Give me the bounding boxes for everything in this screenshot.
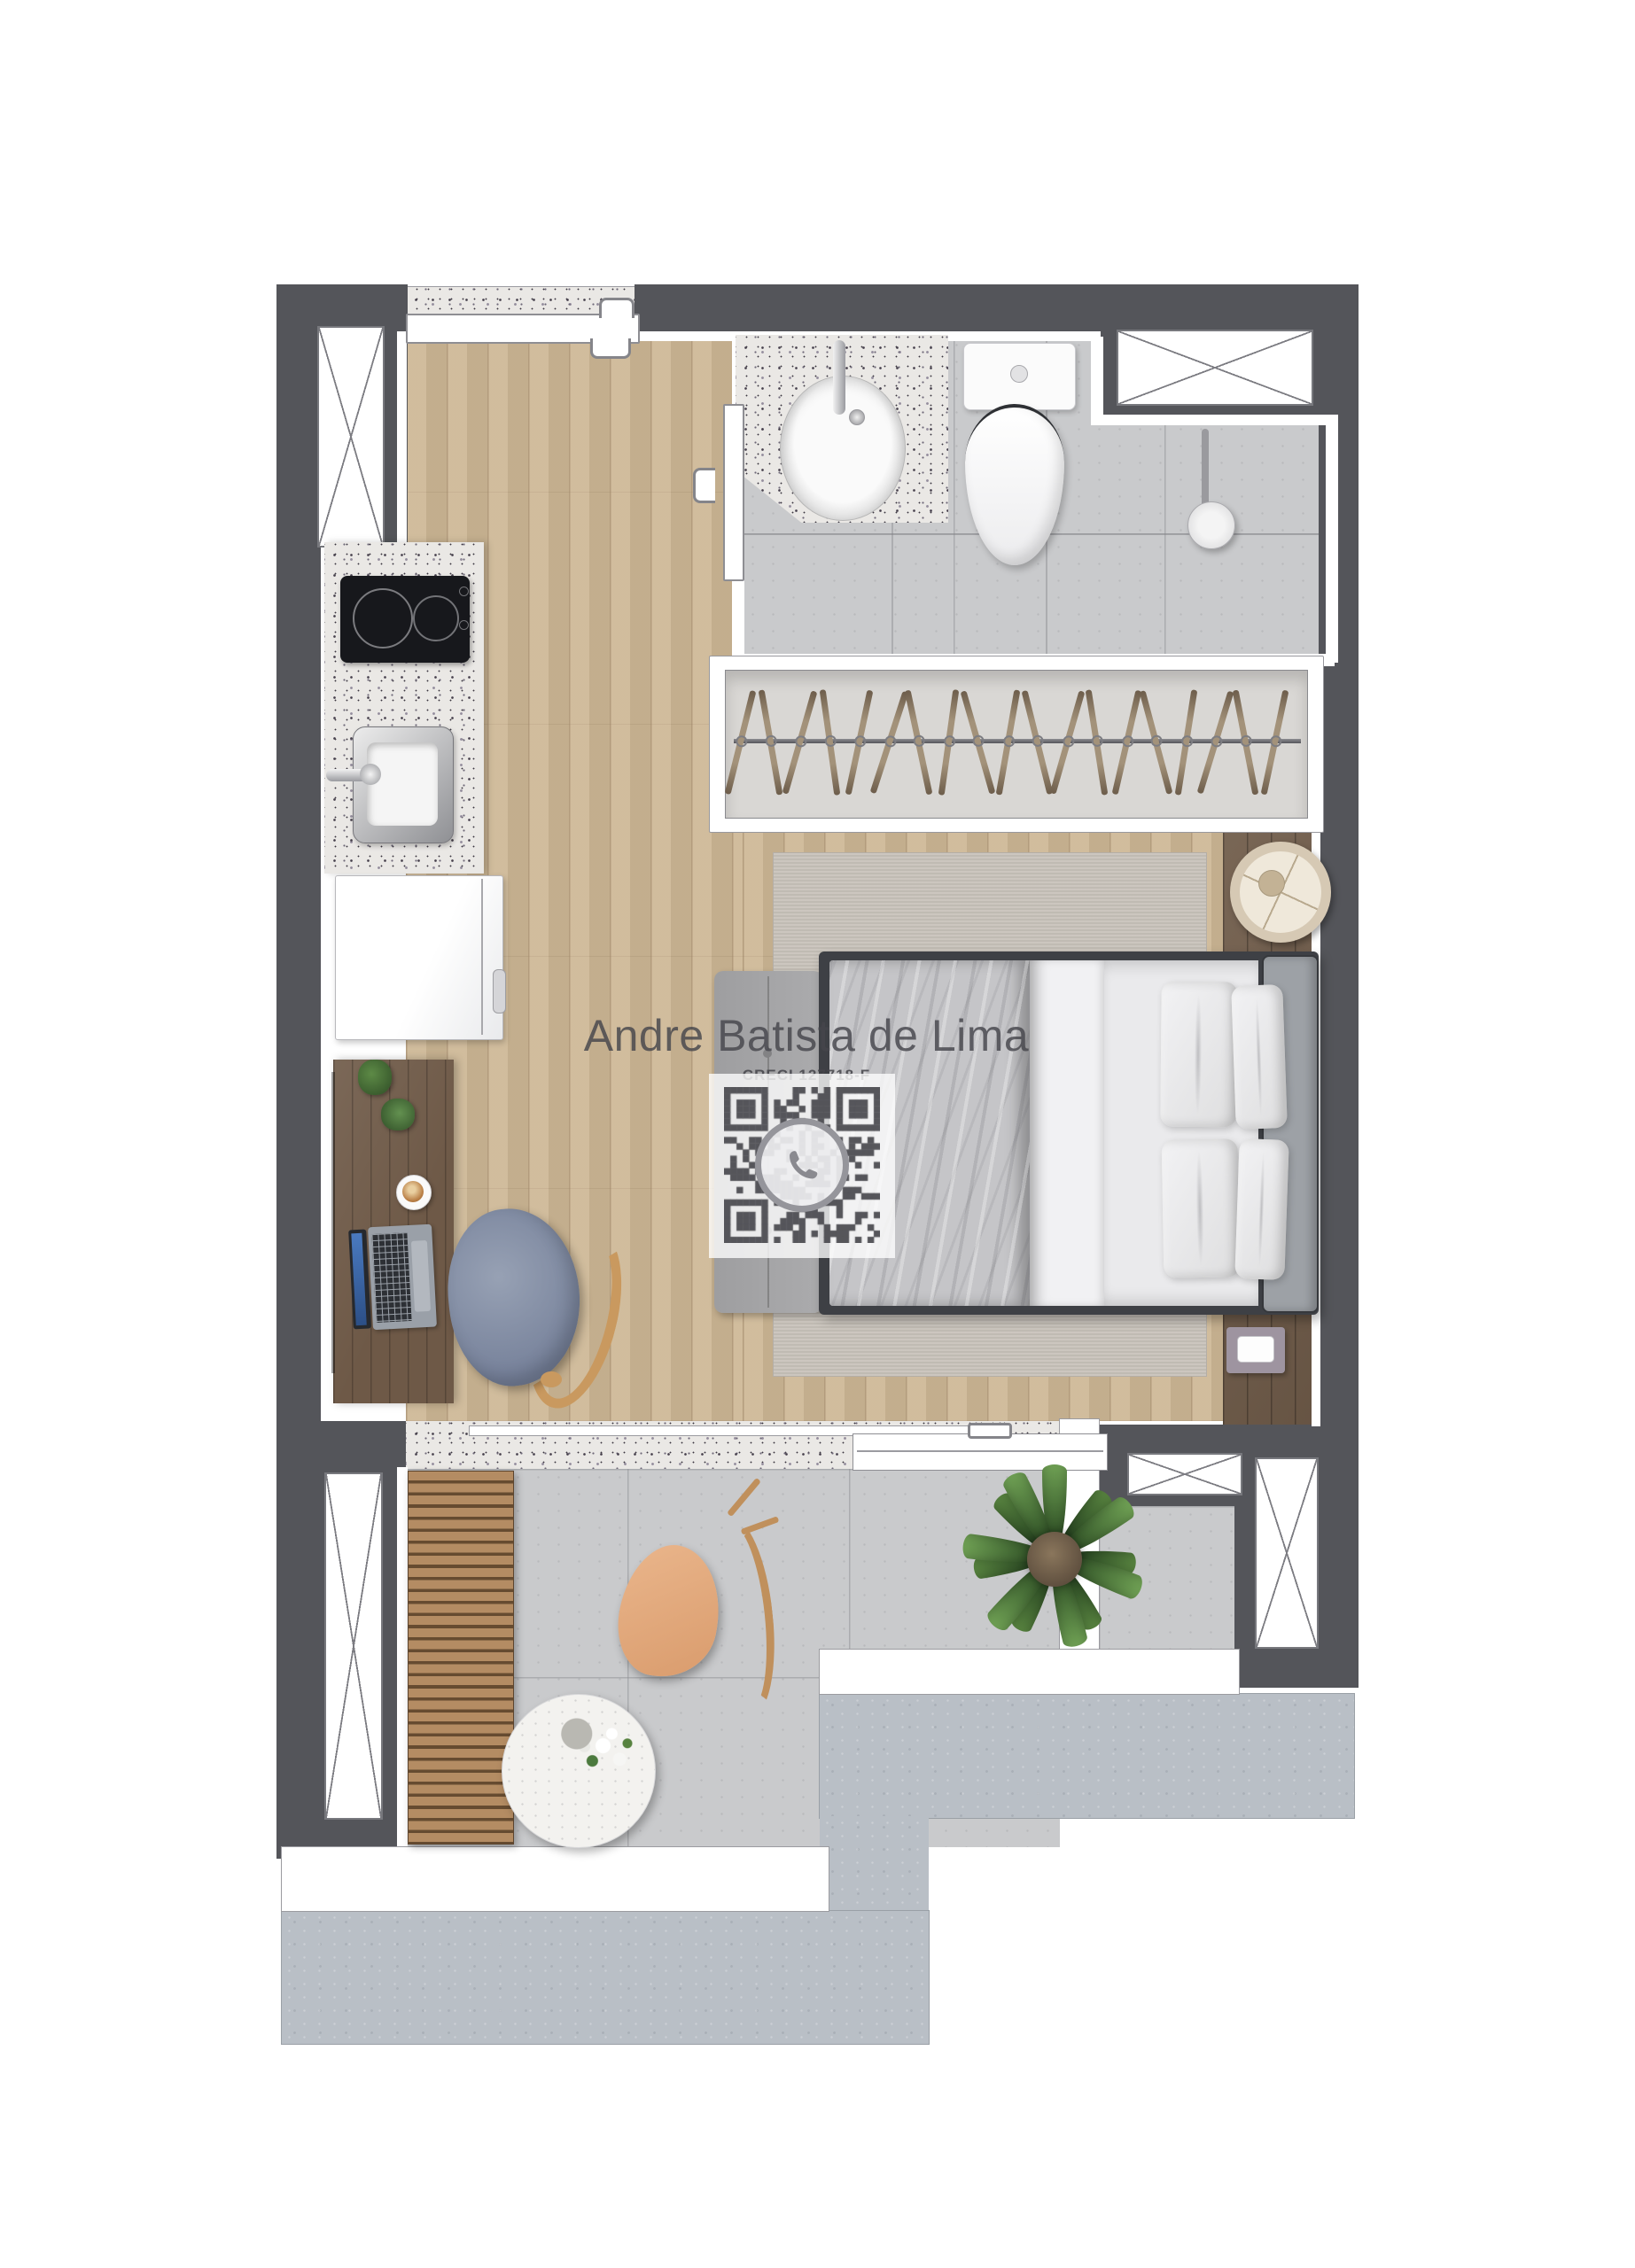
pillow-bottom-outer	[1234, 1138, 1289, 1280]
bedside-lamp-center	[1258, 870, 1285, 897]
fridge	[335, 875, 503, 1040]
bathroom-door-handle-outer	[693, 468, 715, 503]
toilet-flush-button	[1010, 365, 1028, 383]
pillow-bottom-inner	[1162, 1138, 1241, 1278]
nightstand-device	[1237, 1336, 1274, 1363]
kitchen-faucet-base	[360, 764, 381, 785]
desk-plant-1	[358, 1060, 392, 1095]
sliding-door-panels	[853, 1433, 1108, 1471]
qr-panel	[709, 1074, 895, 1258]
shaft-top-right	[1117, 330, 1313, 406]
watermark-name: Andre Batista de Lima	[541, 1010, 1072, 1061]
bathroom-door-leaf	[723, 404, 744, 581]
sliding-door-handle	[968, 1423, 1012, 1439]
pillow-top-inner	[1160, 982, 1237, 1128]
terrace-plant-pot	[1027, 1532, 1082, 1587]
shaft-bottom-vertical	[1255, 1457, 1319, 1649]
sink-drain	[849, 409, 865, 425]
cooktop-control-2	[459, 620, 469, 630]
window-shaft-top-left	[317, 326, 385, 548]
entry-door-handle-inner	[590, 338, 631, 359]
fridge-door-line	[481, 879, 483, 1035]
wall-right	[1319, 420, 1359, 1426]
terrace-plant	[970, 1475, 1139, 1643]
balcony-table-flowers	[549, 1710, 647, 1790]
shower-head	[1187, 501, 1235, 549]
exterior-slab-right	[820, 1694, 1354, 1818]
fridge-handle	[493, 969, 506, 1014]
sliding-door-panel-line	[857, 1450, 1103, 1452]
cooktop-control-1	[459, 586, 469, 596]
balcony-slat-bench	[408, 1471, 514, 1845]
shaft-bottom-horizontal	[1127, 1453, 1242, 1495]
laptop-keyboard	[371, 1232, 411, 1323]
window-shaft-balcony	[324, 1472, 383, 1820]
vanity-faucet	[833, 340, 845, 415]
desk-chair-foot	[541, 1371, 562, 1387]
exterior-slab-bottom	[282, 1911, 929, 2044]
cooktop-burner-small	[413, 595, 459, 641]
laptop	[348, 1224, 437, 1332]
whatsapp-icon	[755, 1118, 849, 1212]
desk-plant-2	[381, 1099, 415, 1130]
pillow-top-outer	[1231, 984, 1288, 1130]
exterior-band-bottom	[282, 1847, 829, 1911]
desk-chair	[448, 1208, 594, 1393]
exterior-band-right	[820, 1650, 1239, 1694]
desk-groove	[331, 1072, 335, 1373]
cooktop-burner-large	[353, 588, 413, 649]
kitchen-sink-basin	[367, 742, 438, 826]
wallline-corridor-left	[397, 337, 407, 549]
coffee-latte	[402, 1181, 424, 1202]
floor-plan: Andre Batista de Lima CRECI 127718-F	[0, 0, 1635, 2268]
wallline-bath-right	[1326, 420, 1338, 663]
wall-top-right	[743, 284, 1101, 338]
entry-door-handle-outer	[599, 298, 635, 318]
wallline-balcony-left	[397, 1467, 408, 1848]
closet-hangers	[725, 670, 1306, 817]
wallline-bath-notch-v	[1091, 337, 1103, 425]
wallline-bath-notch-h	[1091, 415, 1338, 425]
